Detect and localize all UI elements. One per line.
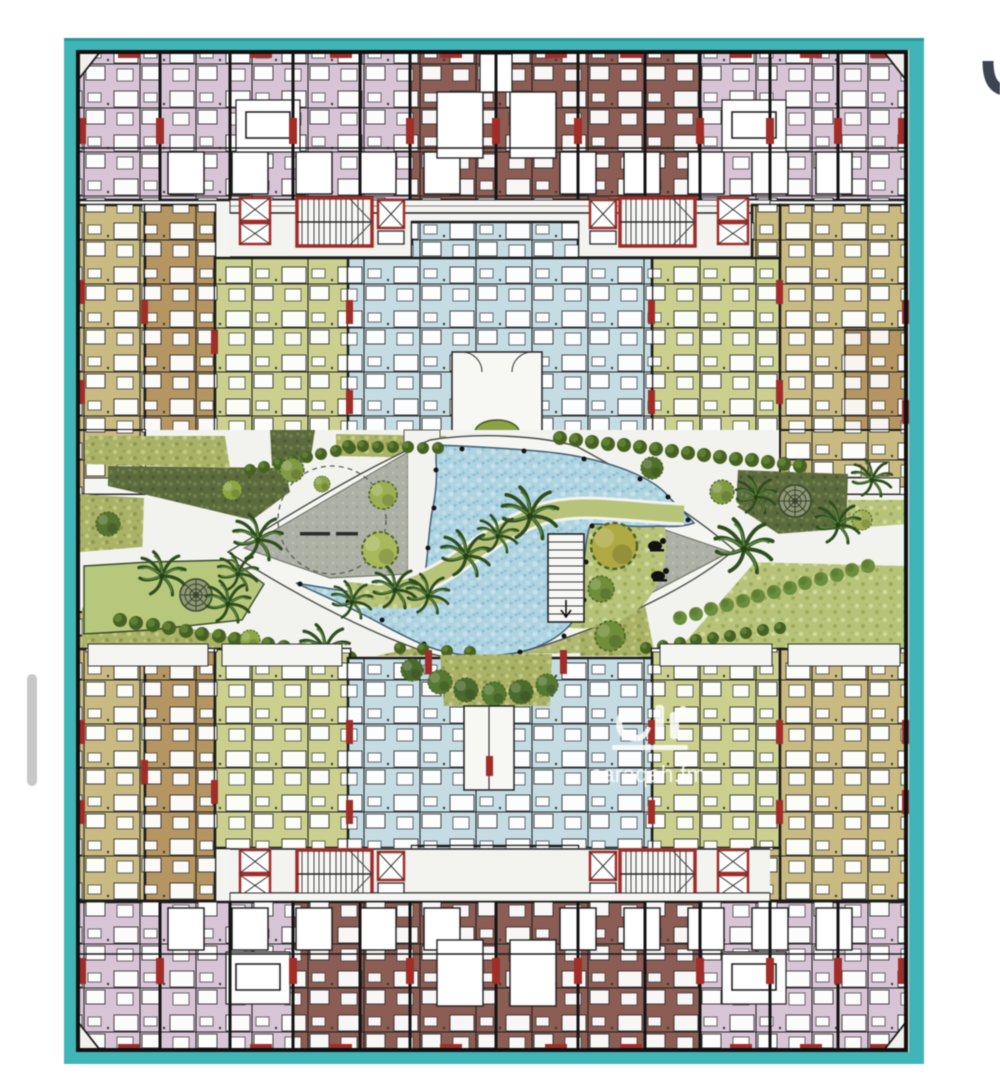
svg-text:saraqah.fm: saraqah.fm	[590, 761, 705, 787]
